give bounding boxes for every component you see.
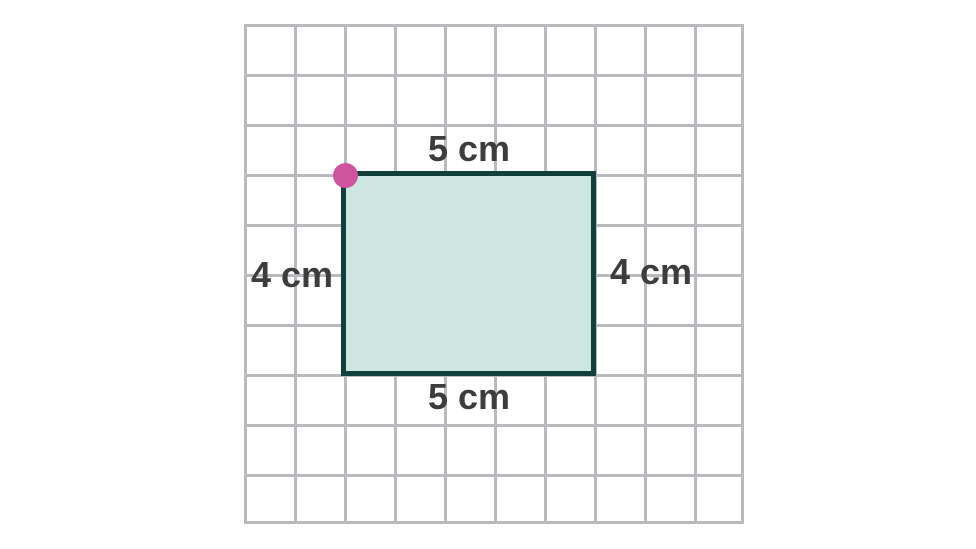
left-side-length-label: 4 cm (203, 257, 333, 293)
top-side-length-label: 5 cm (344, 131, 594, 167)
bottom-side-length-label: 5 cm (344, 379, 594, 415)
worksheet-canvas: 5 cm 5 cm 4 cm 4 cm (0, 0, 976, 549)
right-side-length-label: 4 cm (610, 254, 692, 290)
rectangle-shape (341, 171, 596, 376)
